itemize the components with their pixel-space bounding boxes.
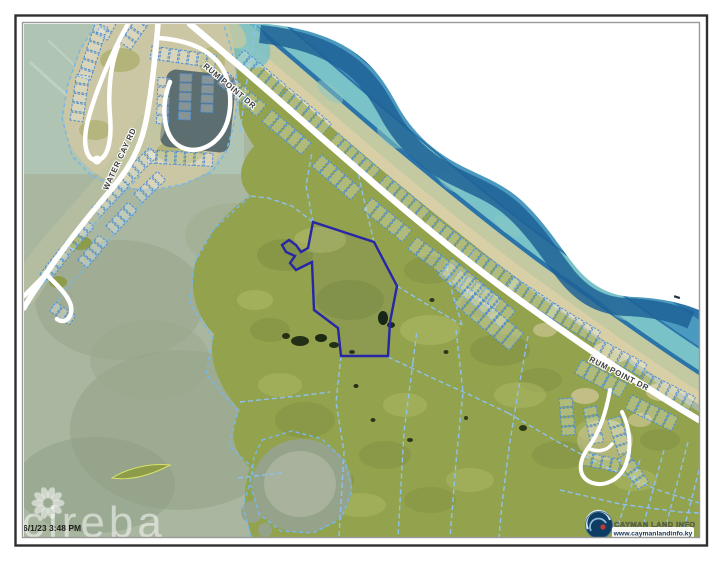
- aerial-parcel-map: RUM POINT DR RUM POINT DR WATER CAY RD c…: [0, 0, 723, 567]
- timestamp: 6/1/23 3:48 PM: [23, 523, 81, 533]
- cul-de-sac: [93, 156, 102, 165]
- logo-url: www.caymanlandinfo.ky: [613, 531, 693, 538]
- swirl-icon: [586, 511, 613, 539]
- map-viewer: RUM POINT DR RUM POINT DR WATER CAY RD c…: [0, 0, 723, 567]
